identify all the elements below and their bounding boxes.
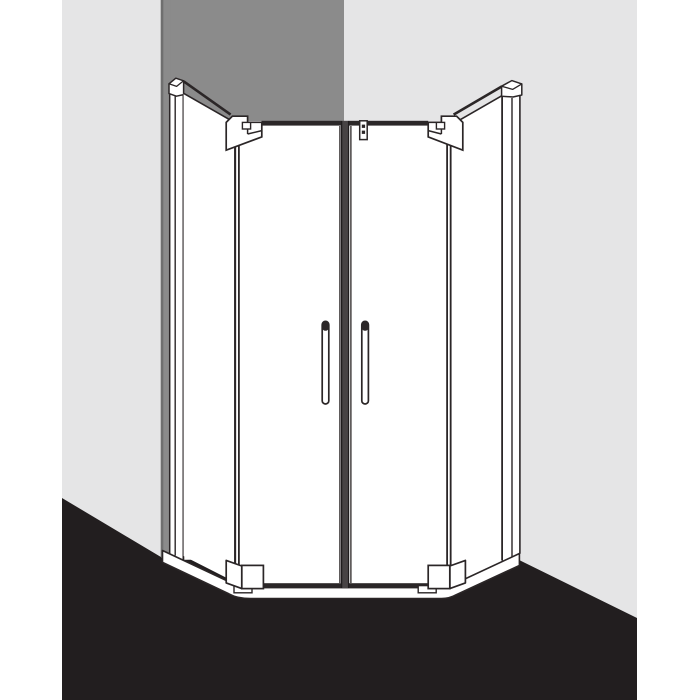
shower-enclosure bbox=[163, 78, 522, 598]
glass-clamp-body bbox=[360, 121, 368, 140]
right-bottom-hinge-face bbox=[428, 565, 450, 588]
product-diagram bbox=[0, 0, 700, 700]
left-bottom-hinge-face bbox=[242, 565, 264, 588]
right-side-panel bbox=[502, 81, 522, 561]
right-door bbox=[344, 121, 452, 584]
left-top-hinge-notch bbox=[242, 122, 250, 129]
left-door-handle bbox=[322, 321, 329, 404]
glass-clamp-screw-top bbox=[362, 125, 365, 128]
right-handle-mount bbox=[362, 321, 369, 330]
right-side-panel-glass bbox=[502, 89, 521, 562]
left-handle-mount bbox=[322, 321, 329, 330]
right-bottom-hinge-slant bbox=[450, 560, 466, 588]
left-handle-bar bbox=[322, 321, 329, 404]
shower-enclosure-drawing bbox=[0, 0, 700, 700]
left-angled-glass bbox=[184, 94, 241, 586]
left-side-panel-glass bbox=[169, 85, 184, 561]
right-handle-bar bbox=[362, 321, 369, 404]
left-door-top-rail bbox=[262, 121, 342, 126]
glass-clamp bbox=[360, 121, 368, 140]
left-side-panel bbox=[169, 78, 184, 561]
left-bottom-hinge-slant bbox=[226, 560, 242, 588]
glass-clamp-screw-bottom bbox=[362, 131, 365, 134]
left-wall bbox=[62, 0, 163, 558]
center-mullion bbox=[341, 121, 349, 589]
left-angled-panel bbox=[184, 81, 241, 585]
mullion-profile bbox=[341, 121, 349, 589]
right-top-hinge-notch bbox=[436, 122, 444, 129]
right-door-handle bbox=[362, 321, 369, 404]
right-door-glass bbox=[344, 121, 452, 584]
